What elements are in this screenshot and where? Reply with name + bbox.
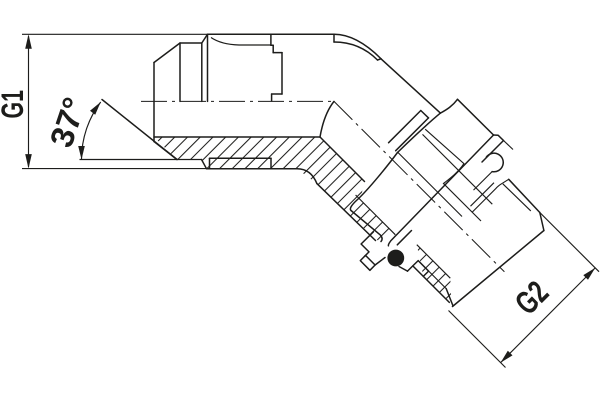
- svg-text:G1: G1: [0, 90, 30, 119]
